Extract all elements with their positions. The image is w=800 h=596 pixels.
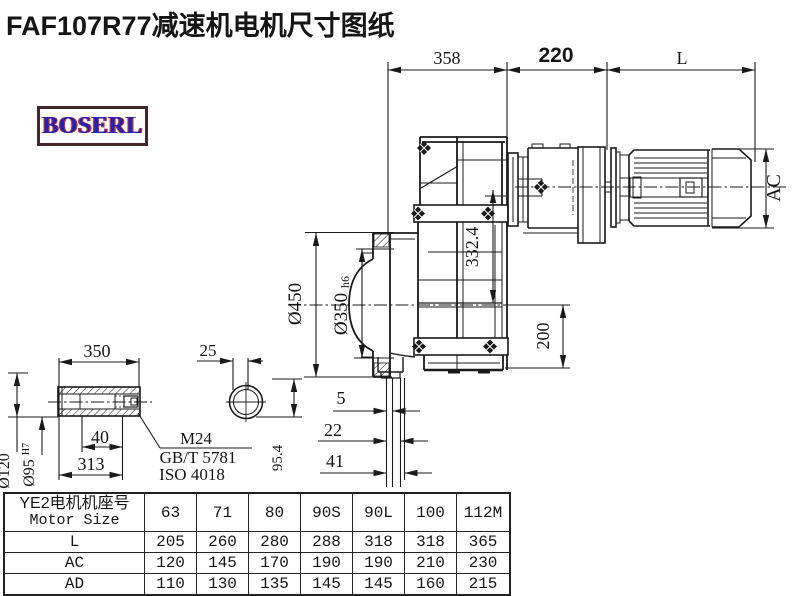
table-cell: 205	[145, 532, 197, 553]
table-row-label: L	[5, 532, 145, 553]
table-row-label: AC	[5, 553, 145, 574]
table-header-size: 90S	[301, 494, 353, 532]
note-std2: ISO 4018	[159, 465, 225, 484]
dim-25: 25	[200, 341, 217, 360]
motor	[611, 148, 751, 227]
dim-spigot-tol: h6	[338, 276, 352, 288]
gearbox-housing	[414, 137, 508, 374]
table-cell: 120	[145, 553, 197, 574]
dim-22: 22	[324, 420, 342, 440]
shaft-end-arrows	[374, 408, 418, 476]
dim-bore95-tol: H7	[21, 443, 32, 455]
table-cell: 210	[405, 553, 457, 574]
table-cell: 190	[301, 553, 353, 574]
table-cell: 318	[353, 532, 405, 553]
output-flange	[349, 233, 418, 378]
table-cell: 230	[457, 553, 509, 574]
table-header-size: 80	[249, 494, 301, 532]
dim-AC: AC	[763, 174, 785, 202]
dim-350: 350	[84, 341, 111, 361]
hollow-shaft-detail	[58, 387, 140, 416]
table-header-size: 112M	[457, 494, 509, 532]
table-cell: 280	[249, 532, 301, 553]
table-cell: 190	[353, 553, 405, 574]
side-dimension-lines	[256, 149, 774, 417]
page: FAF107R77减速机电机尺寸图纸 BOSERL	[0, 0, 800, 596]
dim-313: 313	[78, 454, 105, 474]
motor-size-table: YE2电机机座号 Motor Size 63 71 80 90S 90L 100…	[3, 492, 511, 596]
table-header-size: 63	[145, 494, 197, 532]
dim-center-dist: 332.4	[462, 227, 482, 268]
table-cell: 318	[405, 532, 457, 553]
shaft-section-detail	[197, 358, 266, 422]
table-header-motor-size: YE2电机机座号 Motor Size	[5, 494, 145, 532]
table-cell: 260	[197, 532, 249, 553]
dim-358: 358	[434, 48, 461, 68]
dim-95-4: 95.4	[270, 444, 286, 471]
dim-flange-od: Ø450	[285, 283, 306, 325]
dim-od120: Ø120	[0, 453, 13, 489]
dim-220: 220	[538, 44, 573, 67]
table-header-size: 90L	[353, 494, 405, 532]
table-header-size: 71	[197, 494, 249, 532]
table-cell: 215	[457, 574, 509, 594]
motor-adapter	[508, 144, 611, 243]
table-cell: 145	[301, 574, 353, 594]
table-cell: 365	[457, 532, 509, 553]
dim-5: 5	[337, 388, 346, 408]
table-cell: 170	[249, 553, 301, 574]
dim-41: 41	[326, 451, 344, 471]
table-cell: 130	[197, 574, 249, 594]
dim-bore95: Ø95	[21, 459, 38, 487]
dim-L: L	[677, 48, 688, 68]
table-cell: 160	[405, 574, 457, 594]
shaft-section-arrows	[220, 358, 261, 364]
table-header-size: 100	[405, 494, 457, 532]
table-cell: 288	[301, 532, 353, 553]
table-cell: 145	[353, 574, 405, 594]
dim-spigot: Ø350	[331, 293, 352, 335]
table-cell: 135	[249, 574, 301, 594]
dim-200: 200	[533, 323, 553, 350]
note-thread: M24	[180, 429, 213, 448]
dim-40: 40	[91, 427, 109, 447]
table-row-label: AD	[5, 574, 145, 594]
table-cell: 110	[145, 574, 197, 594]
table-cell: 145	[197, 553, 249, 574]
